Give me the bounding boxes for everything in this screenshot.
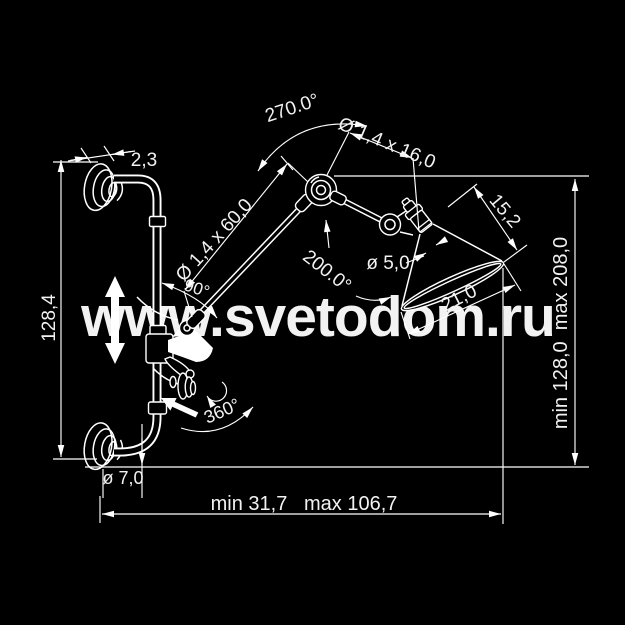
lamp-dimension-drawing: www.svetodom.ru [0, 0, 625, 625]
dim-label-upper-arm-tube: Ø 1,4 x 16,0 [335, 114, 438, 174]
upper-arm [329, 190, 383, 221]
lamp-socket [397, 194, 434, 234]
dim-label-flange-diameter: ø 7,0 [102, 468, 143, 488]
arc-head-rotation-a [326, 220, 329, 248]
dim-label-socket-diameter: ø 5,0 [366, 253, 409, 274]
dim-label-bracket-height: 128,4 [39, 294, 60, 342]
dim-label-elbow-rotation: 270.0° [263, 90, 322, 127]
dim-label-swivel: 360° [201, 394, 243, 427]
dim-label-vertical-extent: min 128,0 max 208,0 [550, 237, 572, 429]
rod-collar-bottom [149, 402, 167, 414]
rod-collar-top [150, 217, 166, 227]
dim-label-horizontal-extent: min 31,7 max 106,7 [211, 493, 398, 515]
bottom-wall-flange [81, 421, 127, 474]
dim-label-lower-arm-tube: Ø 1,4 x 60,0 [172, 195, 257, 286]
arc-swivel-loop [207, 382, 227, 401]
top-wall-flange [81, 162, 127, 215]
technical-drawing-canvas: www.svetodom.ru [0, 0, 625, 625]
dim-label-flange-thickness: 2,3 [131, 150, 157, 171]
